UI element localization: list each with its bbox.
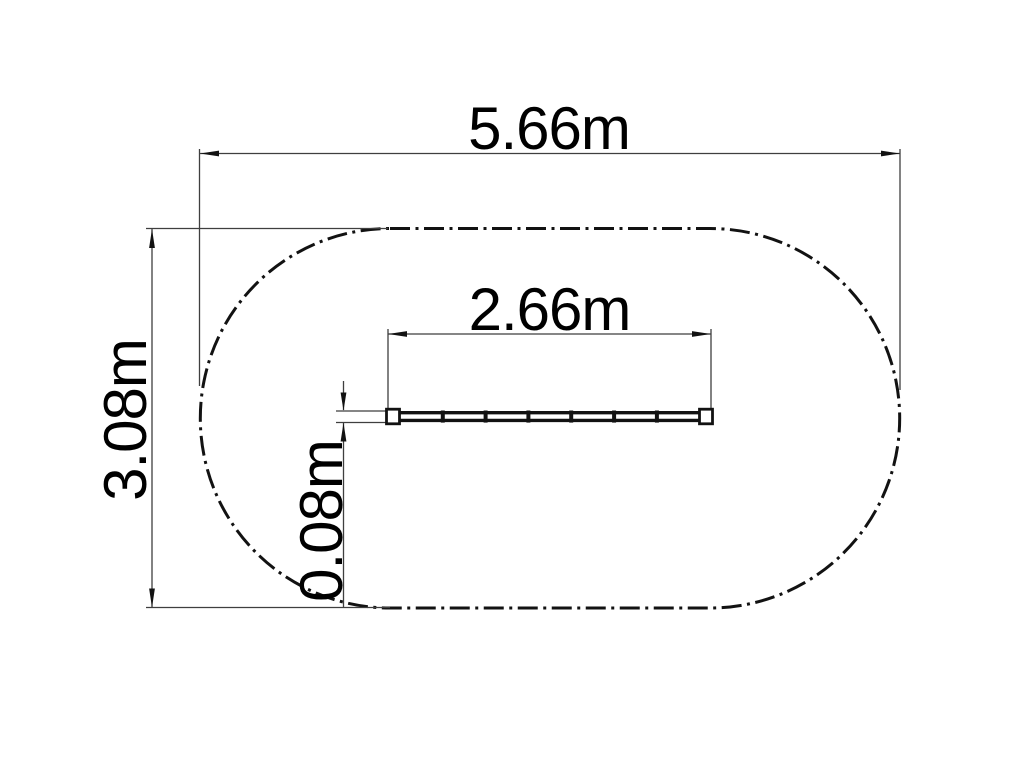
dimension-beam-length: 2.66m (388, 276, 711, 410)
dimension-beam-width: 0.08m (288, 381, 386, 608)
dimension-label-overall-height: 3.08m (92, 339, 159, 501)
beam-end-block-left (387, 409, 400, 424)
dimension-overall-width: 5.66m (200, 95, 901, 390)
dimension-label-beam-width: 0.08m (288, 440, 355, 602)
technical-drawing-canvas: 5.66m 3.08m 2.66m 0.08 (0, 0, 1017, 768)
arrowhead-down (341, 393, 347, 411)
arrowhead-up (341, 423, 347, 442)
arrowhead-up (149, 229, 155, 248)
arrowhead-left (200, 151, 219, 157)
arrowhead-left (388, 331, 407, 337)
beam-end-block-right (700, 409, 713, 424)
balance-beam (387, 409, 713, 424)
drawing-page: 5.66m 3.08m 2.66m 0.08 (0, 0, 1017, 768)
dimension-label-beam-length: 2.66m (469, 276, 631, 343)
arrowhead-right (881, 151, 900, 157)
dimension-label-overall-width: 5.66m (468, 95, 630, 162)
arrowhead-down (149, 589, 155, 608)
arrowhead-right (692, 331, 711, 337)
